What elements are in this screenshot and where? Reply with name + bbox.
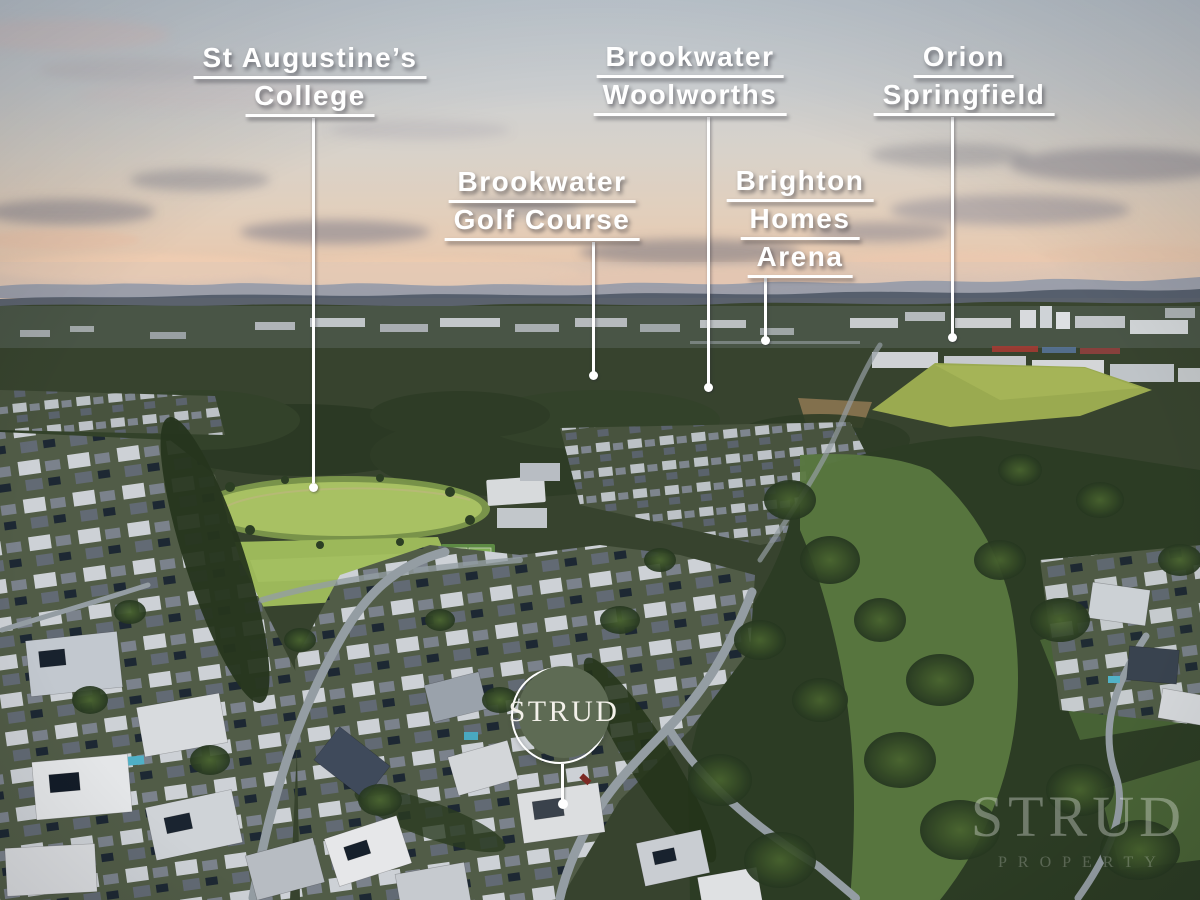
leader-dot-orion (948, 333, 957, 342)
leader-line-st-augustines (312, 118, 315, 483)
label-line: Arena (748, 243, 853, 278)
label-line: College (245, 82, 375, 117)
strud-badge-logo: STRUD (509, 697, 620, 727)
label-line: Brookwater (596, 43, 783, 78)
map-label-brookwater-golf-course: Brookwater Golf Course (445, 168, 640, 244)
map-label-brighton-homes-arena: Brighton Homes Arena (727, 167, 874, 281)
label-line: Homes (741, 205, 860, 240)
label-line: Woolworths (594, 81, 787, 116)
strud-badge-pointer-line (561, 764, 564, 800)
aerial-photo-scene (0, 0, 1200, 900)
leader-dot-golf-course (589, 371, 598, 380)
map-label-st-augustines-college: St Augustine’s College (194, 44, 427, 120)
strud-badge-circle: STRUD (518, 666, 610, 758)
leader-line-woolworths (707, 117, 710, 384)
aerial-photo: St Augustine’s College Brookwater Golf C… (0, 0, 1200, 900)
vignette (0, 0, 1200, 900)
label-line: Brookwater (448, 168, 635, 203)
label-line: Brighton (727, 167, 874, 202)
leader-dot-brighton-arena (761, 336, 770, 345)
strud-badge-pointer-dot (558, 799, 568, 809)
label-line: St Augustine’s (194, 44, 427, 79)
label-line: Orion (914, 43, 1014, 78)
leader-line-golf-course (592, 242, 595, 372)
leader-dot-woolworths (704, 383, 713, 392)
leader-line-orion (951, 117, 954, 334)
label-line: Golf Course (445, 206, 640, 241)
label-line: Springfield (874, 81, 1055, 116)
leader-line-brighton-arena (764, 277, 767, 337)
leader-dot-st-augustines (309, 483, 318, 492)
map-label-orion-springfield: Orion Springfield (874, 43, 1055, 119)
map-label-brookwater-woolworths: Brookwater Woolworths (594, 43, 787, 119)
